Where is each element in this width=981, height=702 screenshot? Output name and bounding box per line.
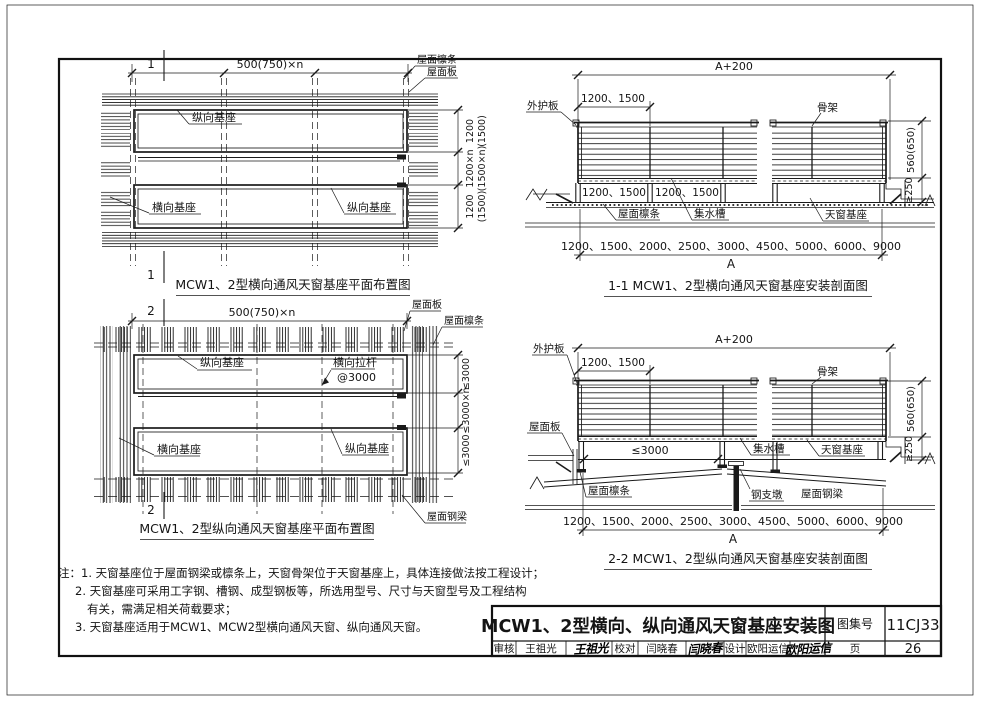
caption-section2: 2-2 MCW1、2型纵向通风天窗基座安装剖面图 — [608, 551, 868, 566]
dim-right-3: ≤3000 — [461, 434, 472, 466]
dim-right-2-alt: (1500×n) — [477, 146, 488, 192]
label-roof-purlin: 屋面檩条 — [444, 314, 484, 327]
base-band: 1200、1500 1200、1500 — [576, 183, 886, 202]
dim-top: 500(750)×n — [229, 306, 296, 319]
roof-panel-lines-bottom — [102, 233, 438, 247]
design-label: 设计 — [725, 642, 746, 655]
label-longitudinal-base: 纵向基座 — [345, 441, 389, 455]
label-tie-rod-spacing: @3000 — [337, 371, 376, 384]
designer-signature: 欧阳运信 — [784, 641, 833, 658]
label-roof-purlin: 屋面檩条 — [618, 207, 660, 220]
label-transverse-base: 横向基座 — [157, 442, 201, 456]
section-mark-2-top: 2 — [147, 304, 155, 318]
page-label: 页 — [850, 643, 861, 655]
dim-base-1: 1200、1500 — [582, 187, 646, 199]
title-block: MCW1、2型横向、纵向通风天窗基座安装图 图集号 11CJ33 审核 王祖光 … — [481, 606, 941, 657]
skylight-louver-assembly — [573, 120, 888, 183]
roof-dash-lines — [94, 343, 455, 497]
dim-overall: A+200 — [715, 333, 753, 346]
sheet-title: MCW1、2型横向、纵向通风天窗基座安装图 — [481, 616, 835, 637]
dim-spacing: 1200、1500 — [581, 357, 645, 369]
section-mark-1-top: 1 — [147, 57, 155, 71]
label-roof-steel-beam: 屋面钢梁 — [427, 510, 467, 523]
dim-height: 560(650) — [906, 386, 917, 432]
dim-top: 500(750)×n — [237, 58, 304, 71]
note-line-3: 有关，需满足相关荷载要求； — [87, 602, 237, 616]
review-label: 审核 — [494, 642, 515, 655]
page-no: 26 — [905, 642, 922, 657]
dim-base-2: 1200、1500 — [655, 187, 719, 199]
label-longitudinal-base: 纵向基座 — [192, 110, 236, 124]
drawing-canvas: 1 1 500(750)×n 纵向基座 — [0, 0, 981, 702]
atlas-no-label: 图集号 — [837, 616, 873, 631]
section-mark-2-bottom: 2 — [147, 503, 155, 517]
roof-panel-hatch-right — [409, 112, 438, 227]
drawing-sheet: 1 1 500(750)×n 纵向基座 — [0, 0, 981, 702]
lower-beam-lines — [525, 506, 935, 510]
dim-right-2: 1200×n — [465, 149, 476, 187]
plan-transverse-skylight: 1 1 500(750)×n 纵向基座 — [101, 50, 488, 296]
note-line-2: 2. 天窗基座可采用工字钢、槽钢、成型钢板等，所选用型号、尺寸与天窗型号及工程结… — [75, 584, 527, 598]
dim-overall: A+200 — [715, 60, 753, 73]
label-roof-purlin: 屋面檩条 — [417, 53, 457, 66]
dim-a: A — [727, 257, 736, 271]
atlas-no: 11CJ33 — [886, 616, 939, 634]
dim-spacing: 1200、1500 — [581, 93, 645, 105]
label-cladding: 外护板 — [527, 99, 559, 112]
middle-longitudinal-base — [138, 394, 406, 431]
label-frame: 骨架 — [817, 102, 838, 114]
section-2-2: A+200 1200、1500 外护板 骨架 — [525, 333, 935, 570]
left-eave — [528, 449, 577, 484]
label-roof-panel: 屋面板 — [529, 420, 561, 433]
label-tie-rod: 横向拉杆 — [333, 355, 377, 369]
checker-name: 闫晓春 — [646, 642, 678, 655]
roof-panel-lines-top — [102, 94, 438, 105]
label-roof-purlin: 屋面檩条 — [588, 484, 630, 497]
dim-right-1-alt: (1500) — [477, 115, 488, 147]
label-gutter: 集水槽 — [694, 207, 726, 220]
label-transverse-base: 横向基座 — [152, 200, 196, 214]
leader-lines — [110, 66, 458, 214]
dim-right-3: 1200 — [465, 194, 476, 218]
dim-right-2: ≤3000×n — [461, 387, 472, 433]
upper-base-frame-inner — [138, 114, 403, 148]
dim-spacing-max: ≤3000 — [631, 444, 668, 457]
upper-base-frame — [134, 110, 407, 152]
roof-panel-hatch-left — [101, 112, 130, 227]
dim-widths: 1200、1500、2000、2500、3000、4500、5000、6000、… — [563, 515, 903, 528]
reviewer-signature: 王祖光 — [573, 641, 611, 657]
roof-deck — [525, 203, 935, 228]
dim-right-1: ≤3000 — [461, 358, 472, 390]
label-cladding: 外护板 — [533, 342, 565, 355]
dim-widths: 1200、1500、2000、2500、3000、4500、5000、6000、… — [561, 240, 901, 253]
label-frame: 骨架 — [817, 366, 838, 378]
note-line-1: 注：1. 天窗基座位于屋面钢梁或檩条上，天窗骨架位于天窗基座上，具体连接做法按工… — [58, 566, 544, 580]
caption-plan1: MCW1、2型横向通风天窗基座平面布置图 — [175, 277, 410, 292]
section-1-1: A+200 1200、1500 外护板 骨架 — [525, 60, 935, 297]
check-label: 校对 — [615, 642, 636, 655]
dim-a: A — [729, 532, 738, 546]
label-steel-pier: 钢支墩 — [751, 488, 783, 501]
label-longitudinal-base: 纵向基座 — [347, 200, 391, 214]
leader-lines — [526, 112, 821, 126]
checker-signature: 闫晓春 — [687, 641, 725, 658]
reviewer-name: 王祖光 — [525, 642, 557, 655]
label-skylight-base: 天窗基座 — [821, 443, 863, 456]
dim-right-3-alt: (1500) — [477, 191, 488, 223]
plan-longitudinal-skylight: 2 2 500(750)×n — [94, 298, 484, 540]
caption-plan2: MCW1、2型纵向通风天窗基座平面布置图 — [139, 521, 374, 536]
skylight-louver-assembly — [573, 378, 888, 441]
dim-right-1: 1200 — [465, 119, 476, 143]
label-longitudinal-base: 纵向基座 — [200, 355, 244, 369]
label-roof-steel-beam: 屋面钢梁 — [801, 487, 843, 500]
dim-height: 560(650) — [906, 127, 917, 173]
tie-rod-arrowhead — [322, 378, 329, 386]
designer-name: 欧阳运信 — [747, 643, 789, 655]
caption-section1: 1-1 MCW1、2型横向通风天窗基座安装剖面图 — [608, 278, 868, 293]
dim-min-height: ≥250 — [904, 177, 915, 203]
label-roof-panel: 屋面板 — [412, 298, 442, 311]
section-mark-1-bottom: 1 — [147, 268, 155, 282]
purlin-hatch-bands — [100, 326, 439, 503]
left-eave — [526, 189, 573, 203]
dim-min-height: ≥250 — [904, 436, 915, 462]
note-line-4: 3. 天窗基座适用于MCW1、MCW2型横向通风天窗、纵向通风天窗。 — [75, 620, 427, 634]
middle-longitudinal-base — [138, 155, 406, 188]
label-roof-panel: 屋面板 — [427, 66, 457, 79]
label-gutter: 集水槽 — [753, 442, 785, 455]
label-skylight-base: 天窗基座 — [825, 208, 867, 221]
notes: 注：1. 天窗基座位于屋面钢梁或檩条上，天窗骨架位于天窗基座上，具体连接做法按工… — [58, 566, 544, 634]
